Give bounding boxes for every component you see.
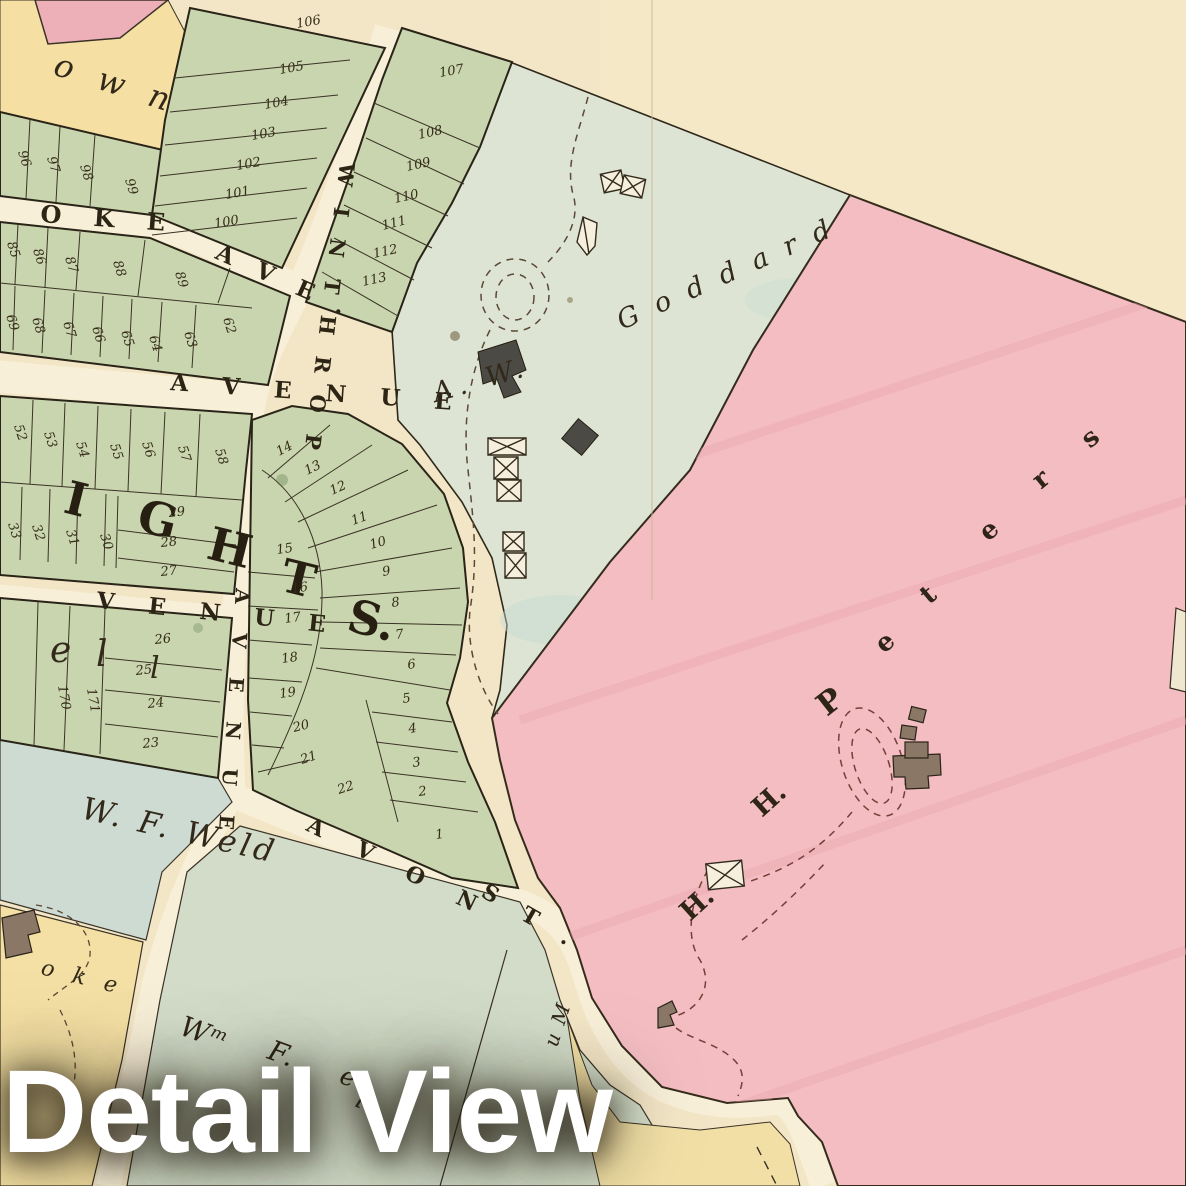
atlas-map-canvas: W I N T H R O PO K EA V E .A V E N U EA … bbox=[0, 0, 1186, 1186]
lot-number: 26 bbox=[153, 631, 172, 648]
lot-number: 16 bbox=[290, 580, 308, 597]
lot-letter-e: e bbox=[50, 630, 71, 671]
peters-barn bbox=[706, 860, 745, 890]
lot-number: 18 bbox=[280, 650, 298, 667]
lot-number: 29 bbox=[167, 504, 186, 521]
map-detail-view[interactable]: W I N T H R O PO K EA V E .A V E N U EA … bbox=[0, 0, 1186, 1186]
lot-number: 15 bbox=[275, 541, 293, 558]
green-blotch-1 bbox=[276, 474, 288, 486]
lot-number: 19 bbox=[278, 685, 296, 702]
lot-number: 17 bbox=[283, 610, 302, 627]
lot-number: 24 bbox=[146, 695, 165, 712]
lot-number: 25 bbox=[134, 662, 153, 679]
lot-number: 23 bbox=[141, 735, 160, 752]
detail-view-caption: Detail View bbox=[2, 1044, 612, 1180]
peters-outbuilding-2 bbox=[900, 725, 917, 740]
paper-blemish-1 bbox=[450, 331, 460, 341]
lot-number: 27 bbox=[159, 563, 179, 580]
paper-blemish-2 bbox=[567, 297, 573, 303]
peters-outbuilding-1 bbox=[909, 706, 927, 722]
peters-mansion-wing bbox=[905, 742, 928, 758]
lot-number: 28 bbox=[159, 534, 178, 551]
lot-letter-l: l bbox=[96, 634, 108, 675]
